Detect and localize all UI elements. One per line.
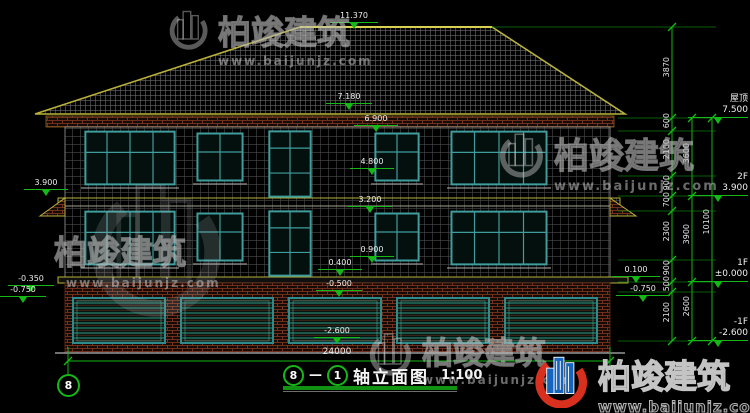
level-value: 3.200 <box>359 195 382 205</box>
window <box>269 131 310 196</box>
level-value: 0.900 <box>361 245 384 255</box>
drawing-title: 8 — 1 轴立面图 1:100 <box>283 363 482 388</box>
title-underline-thin <box>283 391 457 392</box>
axis-dash: — <box>309 368 322 383</box>
level-value: -2.600 <box>324 326 350 336</box>
axis-circle-start: 8 <box>283 365 304 386</box>
storey-mark-2f: 2F3.900 <box>688 172 748 202</box>
elevation-triangle-icon <box>336 270 344 276</box>
storey-value: 7.500 <box>722 105 748 116</box>
storey-mark-1f: 1F±0.000 <box>688 258 748 288</box>
level-value: 11.370 <box>340 11 368 21</box>
elevation-drawing-sheet: 11.370 7.180 6.900 4.800 3.200 0.900 0.4… <box>0 0 750 413</box>
storey-mark-basement: -1F-2.600 <box>688 317 748 347</box>
axis-bubble: 8 <box>57 374 80 397</box>
elevation-triangle-icon <box>350 23 358 29</box>
level-value: 3.900 <box>35 178 58 188</box>
elevation-triangle-icon <box>368 169 376 175</box>
elevation-triangle-icon <box>366 207 374 213</box>
dim-value: 900 <box>662 175 671 190</box>
elevation-triangle-icon <box>345 104 353 110</box>
elevation-triangle-icon <box>19 297 27 303</box>
level-mark-grade-front: -0.500 <box>316 279 362 297</box>
level-mark-eave-bottom: 6.900 <box>354 114 398 132</box>
level-value: -0.750 <box>630 284 656 294</box>
drawing-scale: 1:100 <box>441 368 482 383</box>
overall-dim-value: 24000 <box>305 347 369 357</box>
dim-value: 10100 <box>702 209 711 234</box>
dim-value: 500 <box>662 276 671 291</box>
elevation-triangle-icon <box>714 282 722 288</box>
level-mark-ridge: 11.370 <box>330 11 378 29</box>
level-value: -0.350 <box>18 274 44 284</box>
dim-value: 3900 <box>682 224 691 244</box>
drawing-title-text: 轴立面图 <box>353 363 429 388</box>
dim-value: 2300 <box>662 221 671 241</box>
axis-circle-end: 1 <box>327 365 348 386</box>
dim-value: 3600 <box>682 143 691 163</box>
garage-door <box>397 298 489 343</box>
window <box>451 212 546 265</box>
level-mark-left-2f: 3.900 <box>24 178 68 196</box>
level-value: -0.500 <box>326 279 352 289</box>
window <box>451 132 546 185</box>
storey-label: 屋顶 <box>730 94 748 105</box>
elevation-triangle-icon <box>714 196 722 202</box>
elevation-triangle-icon <box>335 291 343 297</box>
elevation-triangle-icon <box>714 341 722 347</box>
elevation-triangle-icon <box>368 257 376 263</box>
eave-cornice <box>46 116 614 127</box>
level-value: 0.100 <box>625 265 648 275</box>
level-value: 0.400 <box>329 258 352 268</box>
dim-value: 900 <box>662 260 671 275</box>
dim-value: 2100 <box>662 139 671 159</box>
window <box>269 211 310 275</box>
storey-label: -1F <box>734 317 748 328</box>
storey-value: 3.900 <box>722 183 748 194</box>
level-value: 7.180 <box>338 92 361 102</box>
elevation-triangle-icon <box>42 190 50 196</box>
level-mark-garage-floor: -2.600 <box>314 326 360 344</box>
dim-value: 3870 <box>662 57 671 77</box>
dim-value: 600 <box>662 113 671 128</box>
level-mark-right-grade-a: 0.100 <box>612 265 660 283</box>
elevation-triangle-icon <box>639 296 647 302</box>
level-mark-left-grade-b: -0.750 <box>0 285 46 303</box>
level-mark-porch: 0.400 <box>318 258 362 276</box>
canopy-right <box>610 198 636 216</box>
storey-value: ±0.000 <box>715 269 748 280</box>
canopy-left <box>40 198 65 216</box>
storey-label: 1F <box>737 258 748 269</box>
elevation-triangle-icon <box>714 118 722 124</box>
level-value: 6.900 <box>365 114 388 124</box>
watermark-logo-large <box>86 168 236 322</box>
elevation-triangle-icon <box>632 277 640 283</box>
dim-value: 2100 <box>662 302 671 322</box>
axis-bubble-label: 8 <box>65 379 73 392</box>
level-value: 4.800 <box>361 157 384 167</box>
level-mark-sill-2f: 4.800 <box>350 157 394 175</box>
elevation-triangle-icon <box>372 126 380 132</box>
storey-mark-roof: 屋顶7.500 <box>688 94 748 124</box>
level-value: -0.750 <box>10 285 36 295</box>
storey-value: -2.600 <box>719 328 748 339</box>
dim-value: 700 <box>662 192 671 207</box>
level-mark-eave-top: 7.180 <box>326 92 372 110</box>
title-underline <box>283 386 457 390</box>
storey-label: 2F <box>737 172 748 183</box>
dim-value: 2600 <box>682 296 691 316</box>
level-mark-lintel-1f: 3.200 <box>348 195 392 213</box>
garage-door <box>505 298 597 343</box>
elevation-triangle-icon <box>333 338 341 344</box>
